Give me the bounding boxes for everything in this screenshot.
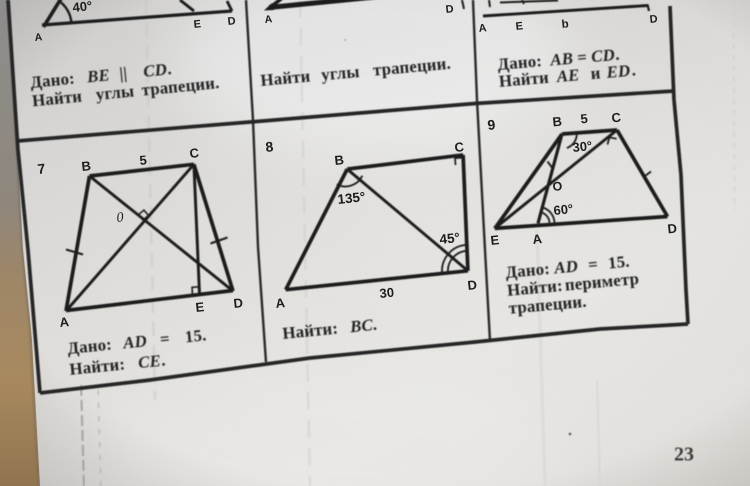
svg-text:B: B — [334, 152, 345, 168]
svg-text:135°: 135° — [337, 189, 366, 207]
svg-text:60°: 60° — [553, 201, 574, 218]
svg-text:D: D — [227, 15, 236, 28]
svg-text:D: D — [233, 295, 244, 311]
svg-text:30: 30 — [379, 285, 395, 301]
svg-text:D: D — [649, 13, 658, 26]
svg-text:D: D — [667, 221, 678, 237]
svg-text:45°: 45° — [439, 230, 461, 247]
svg-text:E: E — [515, 20, 524, 33]
svg-text:B: B — [552, 114, 563, 130]
svg-text:30°: 30° — [572, 138, 593, 155]
svg-text:A: A — [478, 22, 487, 35]
svg-text:40°: 40° — [72, 0, 93, 15]
svg-text:b: b — [561, 18, 569, 31]
svg-text:D: D — [445, 3, 454, 16]
svg-text:D: D — [467, 277, 478, 293]
svg-text:E: E — [193, 18, 202, 31]
svg-text:O: O — [552, 179, 563, 194]
svg-text:B: B — [81, 158, 92, 174]
svg-text:23: 23 — [674, 444, 694, 466]
